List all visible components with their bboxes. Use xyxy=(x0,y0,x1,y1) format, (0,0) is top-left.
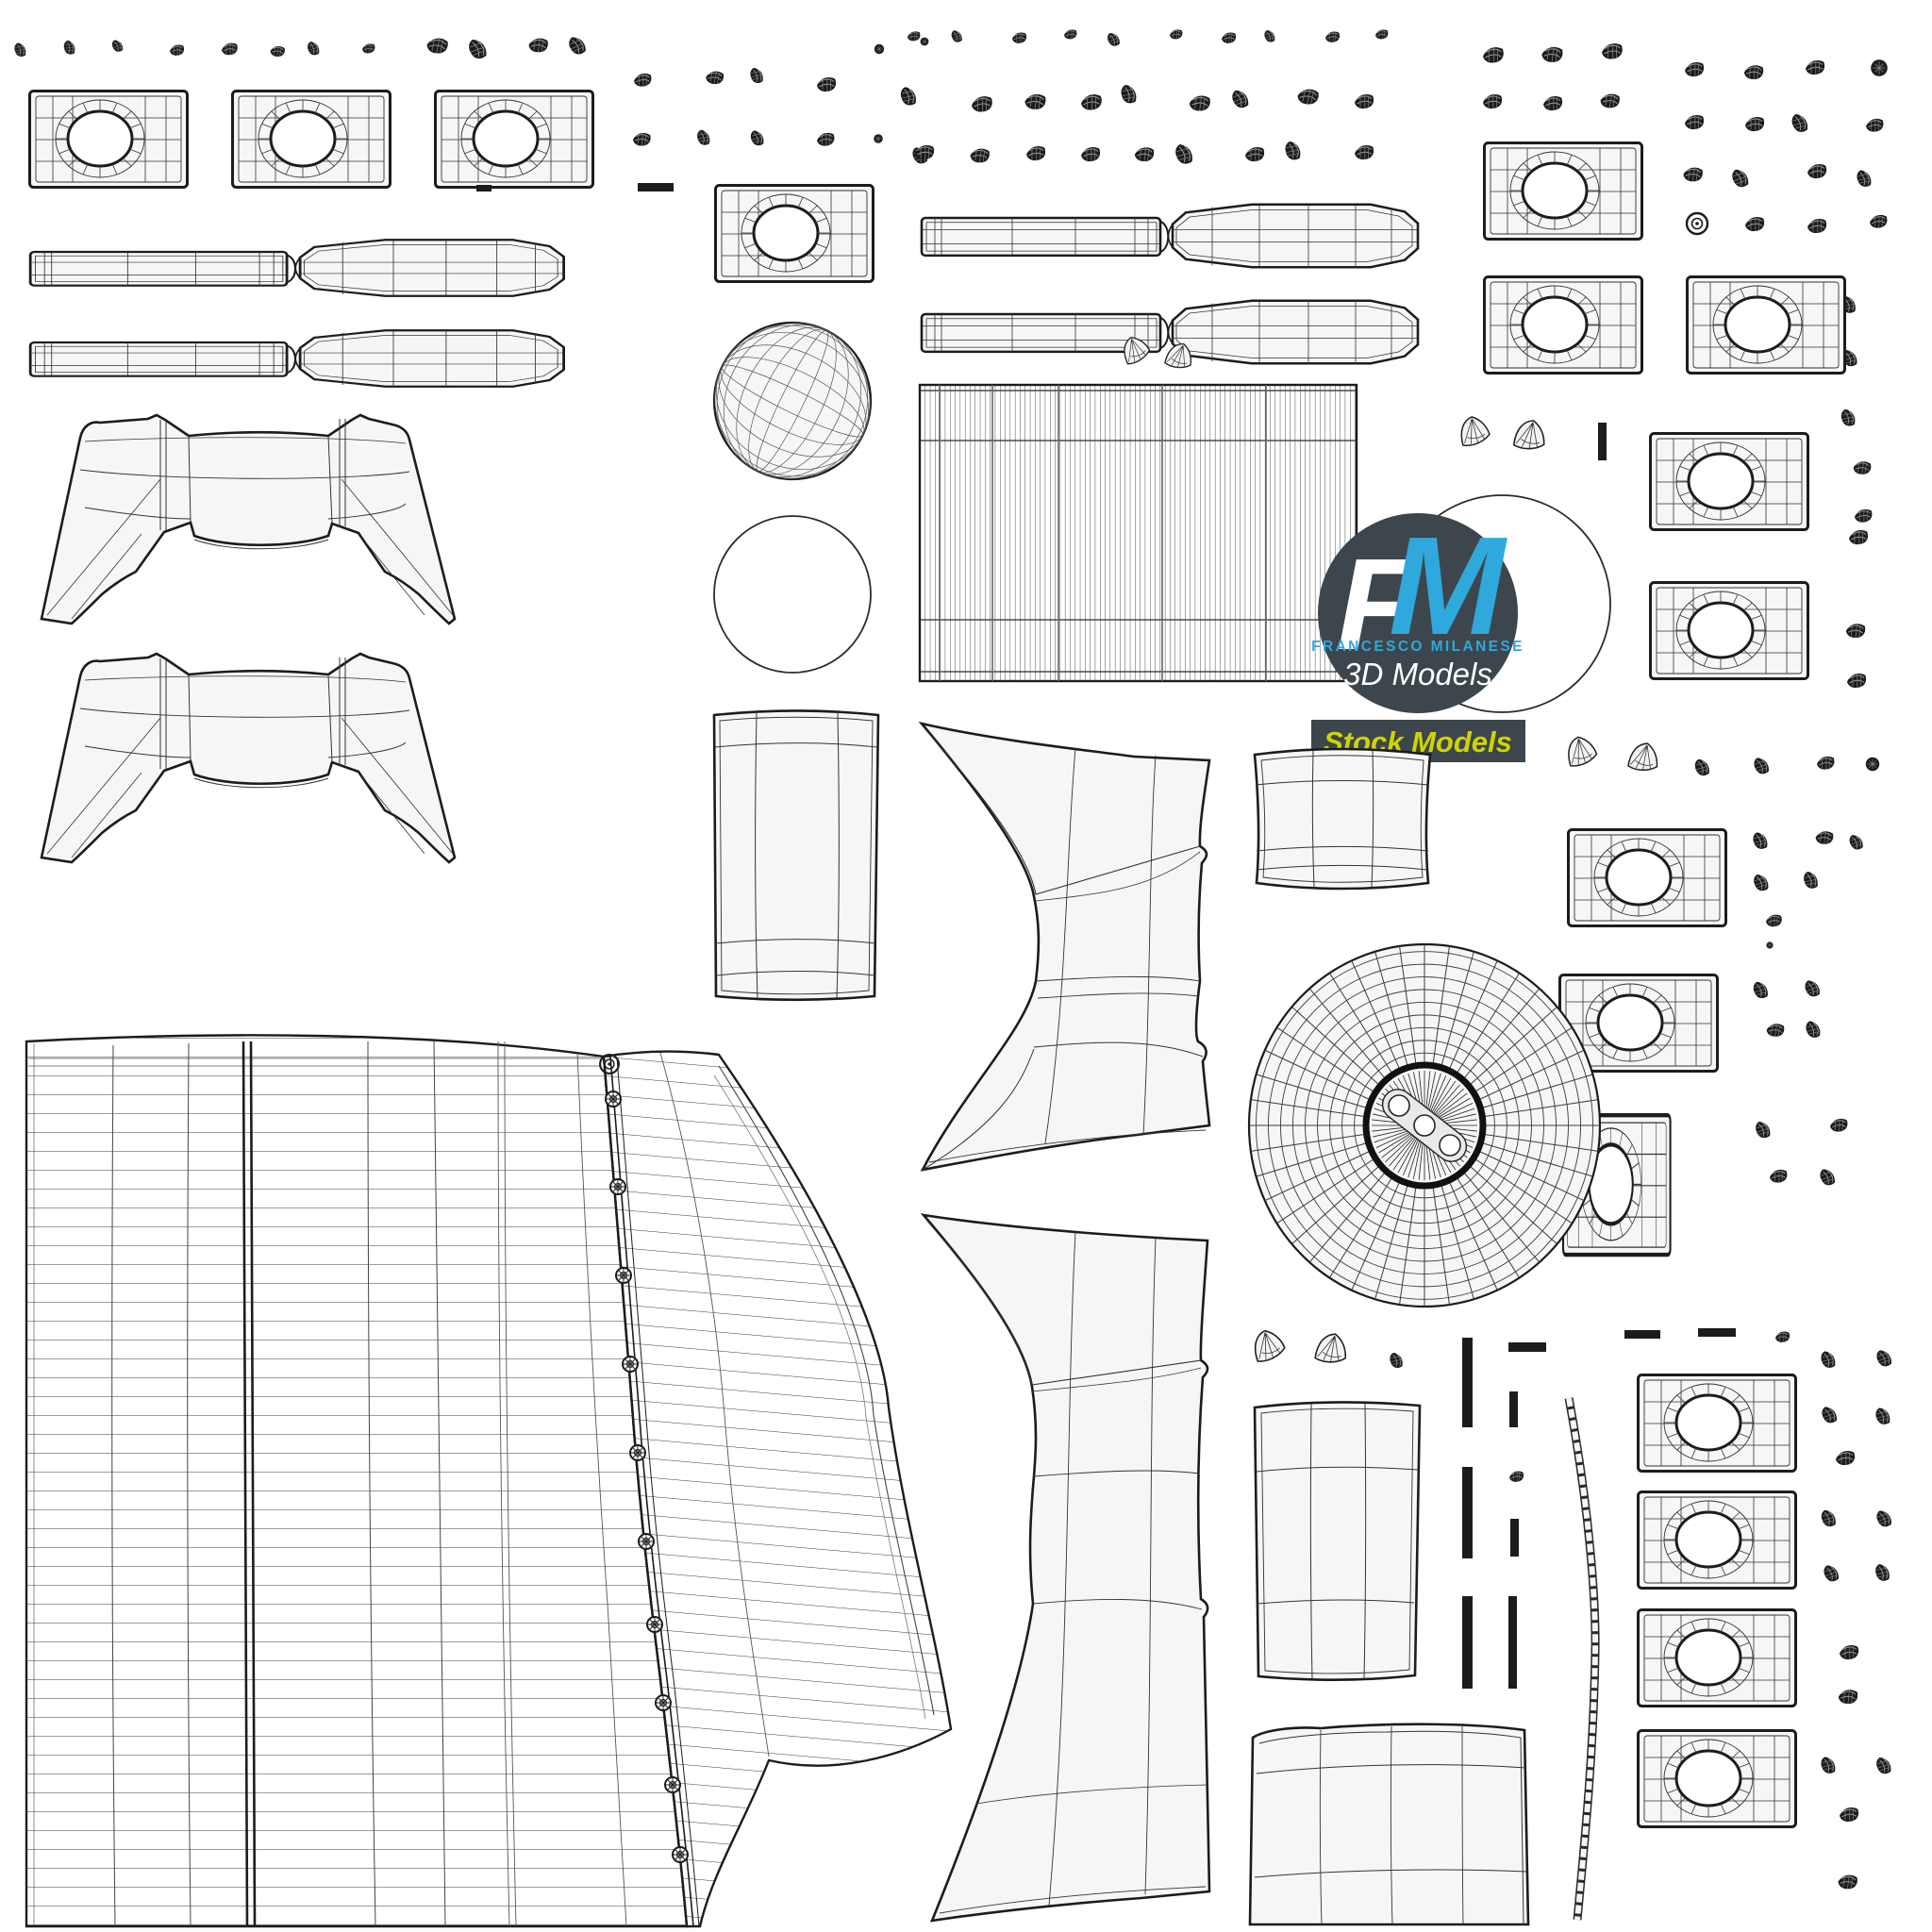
panel-mid-rect xyxy=(714,711,878,1000)
handle-bar-right-1 xyxy=(922,205,1418,268)
plate-with-hole-d2 xyxy=(1639,1492,1796,1589)
pillow-panel-1 xyxy=(1255,749,1430,889)
plate-with-hole-d1 xyxy=(1639,1375,1796,1472)
plate-with-hole-b1 xyxy=(1485,143,1642,240)
plate-with-hole-b2 xyxy=(1485,277,1642,374)
plate-with-hole-d3 xyxy=(1639,1610,1796,1707)
plate-with-hole-b5 xyxy=(1651,583,1808,679)
tall-plain-panel xyxy=(1255,1402,1420,1679)
black-dash xyxy=(476,185,491,192)
saddle-panel-2 xyxy=(42,654,455,862)
plate-with-hole-d4 xyxy=(1639,1731,1796,1827)
fm-logo: F M FRANCESCO MILANESE 3D Models xyxy=(1311,508,1524,713)
wireframe-sphere xyxy=(688,296,897,506)
radial-disc xyxy=(1249,944,1600,1307)
black-dash xyxy=(1598,423,1607,460)
black-dash xyxy=(638,183,674,192)
logo-tagline: 3D Models xyxy=(1343,657,1492,691)
debris-bottom-right xyxy=(1820,1348,1893,1890)
filled-dot xyxy=(1871,59,1888,76)
wireframe-circle xyxy=(714,516,871,673)
curved-ladder-strip xyxy=(1569,1398,1595,1920)
bottom-plain-panel xyxy=(1250,1724,1528,1924)
small-shell-pieces-bottom xyxy=(1252,1327,1404,1369)
concentric-ring xyxy=(1687,213,1707,234)
bow-panel-2 xyxy=(924,1215,1209,1921)
handle-bar-left-2 xyxy=(30,330,563,387)
logo-name: FRANCESCO MILANESE xyxy=(1311,639,1524,655)
saddle-panel-1 xyxy=(42,415,455,624)
bow-panel-1 xyxy=(922,724,1209,1170)
plate-with-hole-a1 xyxy=(30,92,188,188)
plate-with-hole-a3 xyxy=(436,92,593,188)
plate-with-hole-a2 xyxy=(233,92,391,188)
striped-panel xyxy=(920,385,1357,681)
debris-rows-top-right xyxy=(899,28,1388,165)
debris-row-top-left xyxy=(13,34,587,61)
plate-with-hole-mid xyxy=(716,186,874,282)
plate-with-hole-b3 xyxy=(1688,277,1845,374)
plate-with-hole-c1 xyxy=(1569,830,1726,926)
plate-with-hole-b4 xyxy=(1651,434,1808,530)
uv-sheet-canvas: F M FRANCESCO MILANESE 3D Models Stock M… xyxy=(0,0,1932,1932)
small-shell-pieces xyxy=(1459,415,1607,460)
hull-panel xyxy=(26,1035,951,1926)
handle-bar-left-1 xyxy=(30,240,563,296)
hull-main-fan xyxy=(26,1035,687,1926)
